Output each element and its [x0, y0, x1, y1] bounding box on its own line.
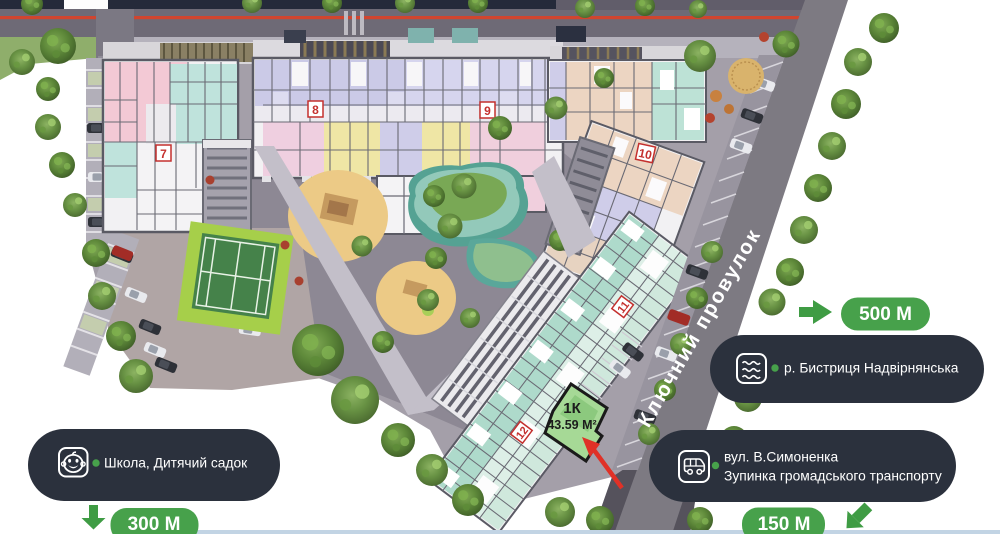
- svg-text:150 М: 150 М: [758, 514, 811, 534]
- svg-text:9: 9: [484, 104, 491, 118]
- svg-text:43.59 М²: 43.59 М²: [547, 418, 596, 432]
- svg-text:7: 7: [160, 147, 167, 161]
- svg-text:р. Бистриця Надвірнянська: р. Бистриця Надвірнянська: [784, 361, 959, 376]
- svg-text:Школа, Дитячий садок: Школа, Дитячий садок: [104, 456, 248, 471]
- svg-text:500 М: 500 М: [859, 304, 912, 325]
- svg-text:1К: 1К: [563, 400, 581, 417]
- svg-text:300 М: 300 М: [128, 514, 181, 534]
- svg-text:Зупинка громадського транспорт: Зупинка громадського транспорту: [724, 469, 942, 484]
- svg-text:вул. В.Симоненка: вул. В.Симоненка: [724, 450, 838, 465]
- svg-text:8: 8: [312, 103, 319, 117]
